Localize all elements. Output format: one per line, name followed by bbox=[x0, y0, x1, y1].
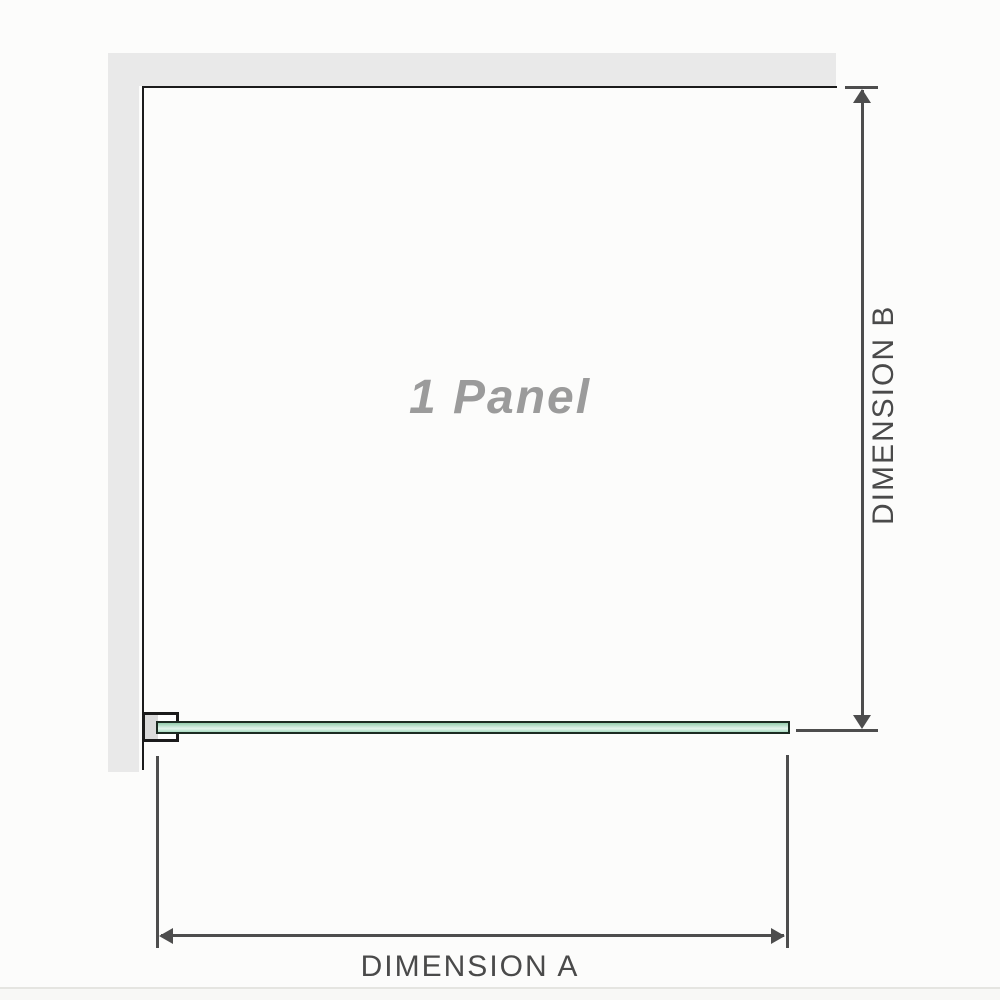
panel-area-top-edge bbox=[142, 86, 837, 88]
panel-count-label: 1 Panel bbox=[350, 370, 650, 425]
dimension-b-line bbox=[861, 90, 864, 722]
dimension-a-label: DIMENSION A bbox=[300, 950, 640, 984]
dimension-b-bottom-tick bbox=[796, 729, 878, 732]
wall-top bbox=[108, 53, 836, 86]
arrow-left-icon bbox=[159, 928, 173, 944]
dimension-b-label: DIMENSION B bbox=[869, 305, 899, 525]
shower-panel-dimension-diagram: 1 Panel DIMENSION B DIMENSION A bbox=[0, 0, 1000, 1000]
dimension-a-line bbox=[161, 934, 784, 937]
glass-panel bbox=[156, 721, 790, 734]
arrow-up-icon bbox=[853, 89, 871, 103]
arrow-right-icon bbox=[771, 928, 785, 944]
arrow-down-icon bbox=[853, 715, 871, 729]
dimension-a-left-extension-line bbox=[156, 756, 159, 948]
wall-left bbox=[108, 53, 139, 772]
bottom-margin-area bbox=[0, 989, 1000, 1000]
panel-area-left-edge bbox=[142, 86, 144, 770]
dimension-a-right-extension-line bbox=[786, 755, 789, 948]
